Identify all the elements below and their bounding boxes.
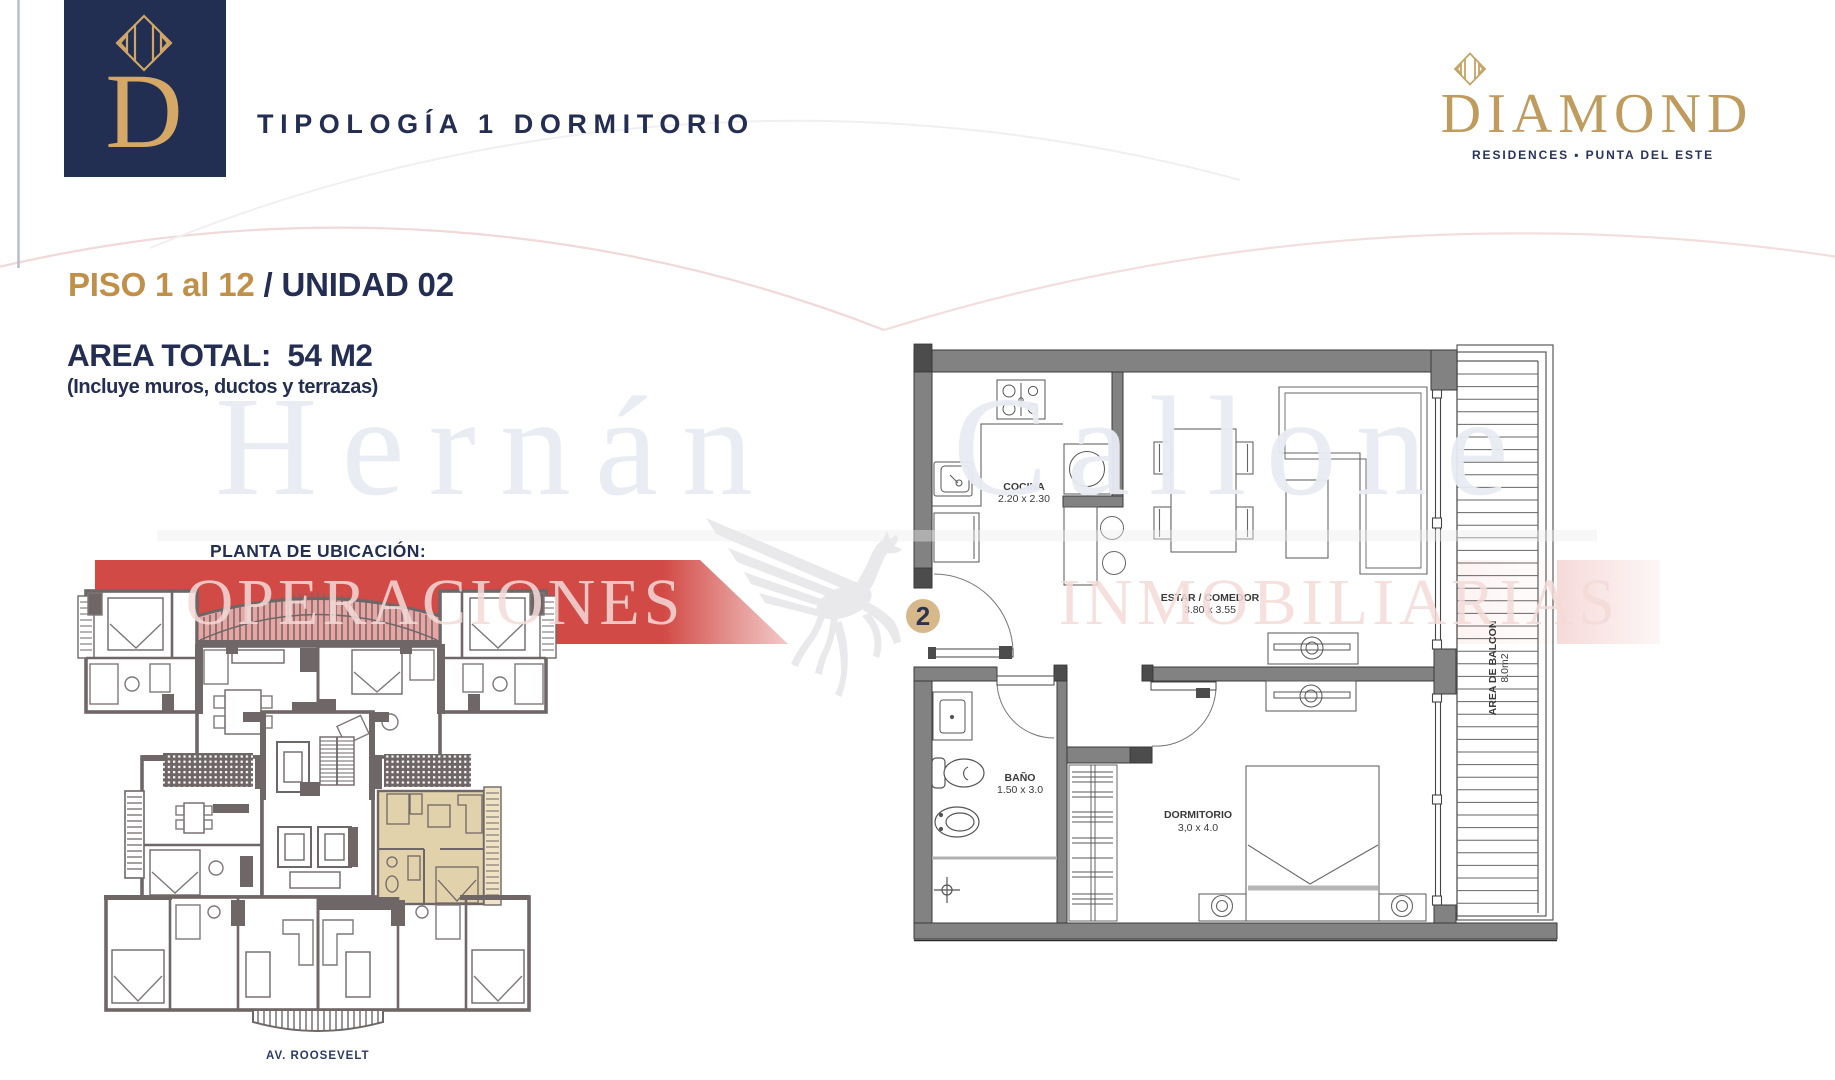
svg-text:DIAMOND: DIAMOND xyxy=(1441,83,1754,145)
svg-text:D: D xyxy=(105,53,182,171)
svg-text:INMOBILIARIAS: INMOBILIARIAS xyxy=(1059,566,1620,639)
svg-text:RESIDENCES ▪ PUNTA DEL ESTE: RESIDENCES ▪ PUNTA DEL ESTE xyxy=(1472,148,1714,162)
svg-text:Callone: Callone xyxy=(953,367,1528,525)
svg-text:OPERACIONES: OPERACIONES xyxy=(186,566,685,639)
